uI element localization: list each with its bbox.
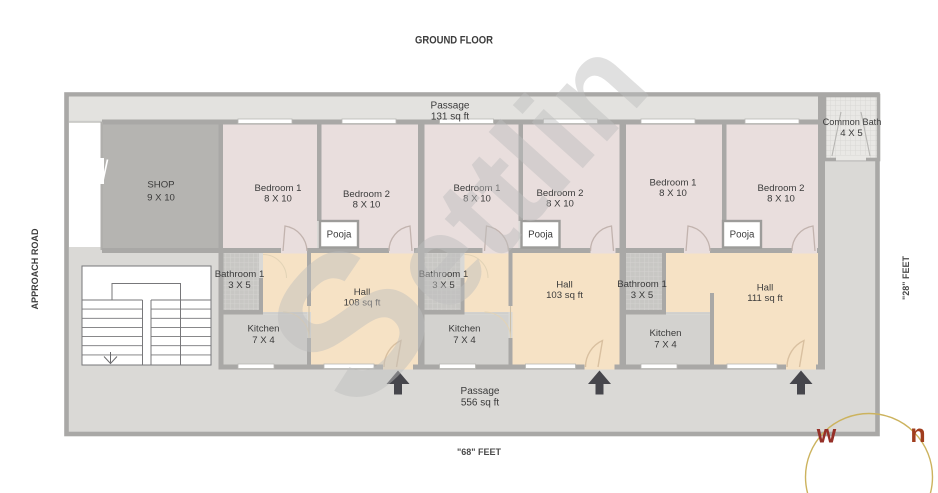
svg-text:Pooja: Pooja	[730, 230, 755, 241]
svg-text:Bedroom 1: Bedroom 1	[650, 178, 697, 189]
svg-text:Kitchen: Kitchen	[650, 328, 682, 339]
svg-text:4 X 5: 4 X 5	[840, 128, 862, 139]
svg-text:3 X 5: 3 X 5	[631, 290, 653, 301]
svg-text:8 X 10: 8 X 10	[353, 200, 381, 211]
svg-text:"68" FEET: "68" FEET	[457, 447, 501, 458]
svg-text:Bathroom 1: Bathroom 1	[617, 279, 667, 290]
svg-text:Passage: Passage	[431, 101, 470, 112]
svg-text:n: n	[910, 420, 925, 448]
svg-text:8 X 10: 8 X 10	[767, 194, 795, 205]
svg-text:8 X 10: 8 X 10	[659, 188, 687, 199]
svg-text:GROUND FLOOR: GROUND FLOOR	[415, 35, 493, 47]
svg-text:556 sq ft: 556 sq ft	[461, 397, 500, 408]
svg-text:9 X 10: 9 X 10	[147, 193, 175, 204]
svg-text:Bedroom 2: Bedroom 2	[343, 189, 390, 200]
svg-text:Bedroom 2: Bedroom 2	[758, 183, 805, 194]
svg-text:Hall: Hall	[757, 283, 774, 294]
svg-text:w: w	[816, 421, 837, 449]
svg-text:103 sq ft: 103 sq ft	[546, 290, 583, 301]
svg-text:Hall: Hall	[556, 280, 573, 291]
svg-text:7 X 4: 7 X 4	[654, 339, 677, 350]
svg-text:Bedroom 1: Bedroom 1	[255, 183, 302, 194]
svg-text:8 X 10: 8 X 10	[264, 194, 292, 205]
svg-text:"28" FEET: "28" FEET	[901, 256, 912, 300]
svg-text:Passage: Passage	[461, 386, 500, 397]
svg-text:APPROACH ROAD: APPROACH ROAD	[29, 228, 40, 309]
svg-text:111 sq ft: 111 sq ft	[747, 293, 783, 304]
svg-text:SHOP: SHOP	[147, 180, 174, 191]
svg-text:131 sq ft: 131 sq ft	[431, 112, 470, 123]
svg-text:Common Bath: Common Bath	[823, 117, 882, 127]
